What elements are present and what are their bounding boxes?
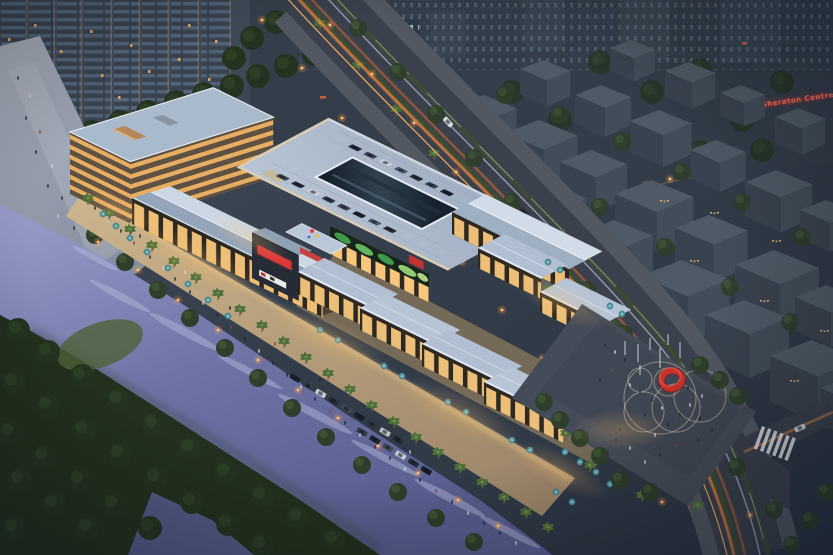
architectural-rendering: Sheraton Centre Sheraton Centre <box>0 0 833 555</box>
vignette-overlay <box>0 0 833 555</box>
rendering-canvas: Sheraton Centre Sheraton Centre <box>0 0 833 555</box>
